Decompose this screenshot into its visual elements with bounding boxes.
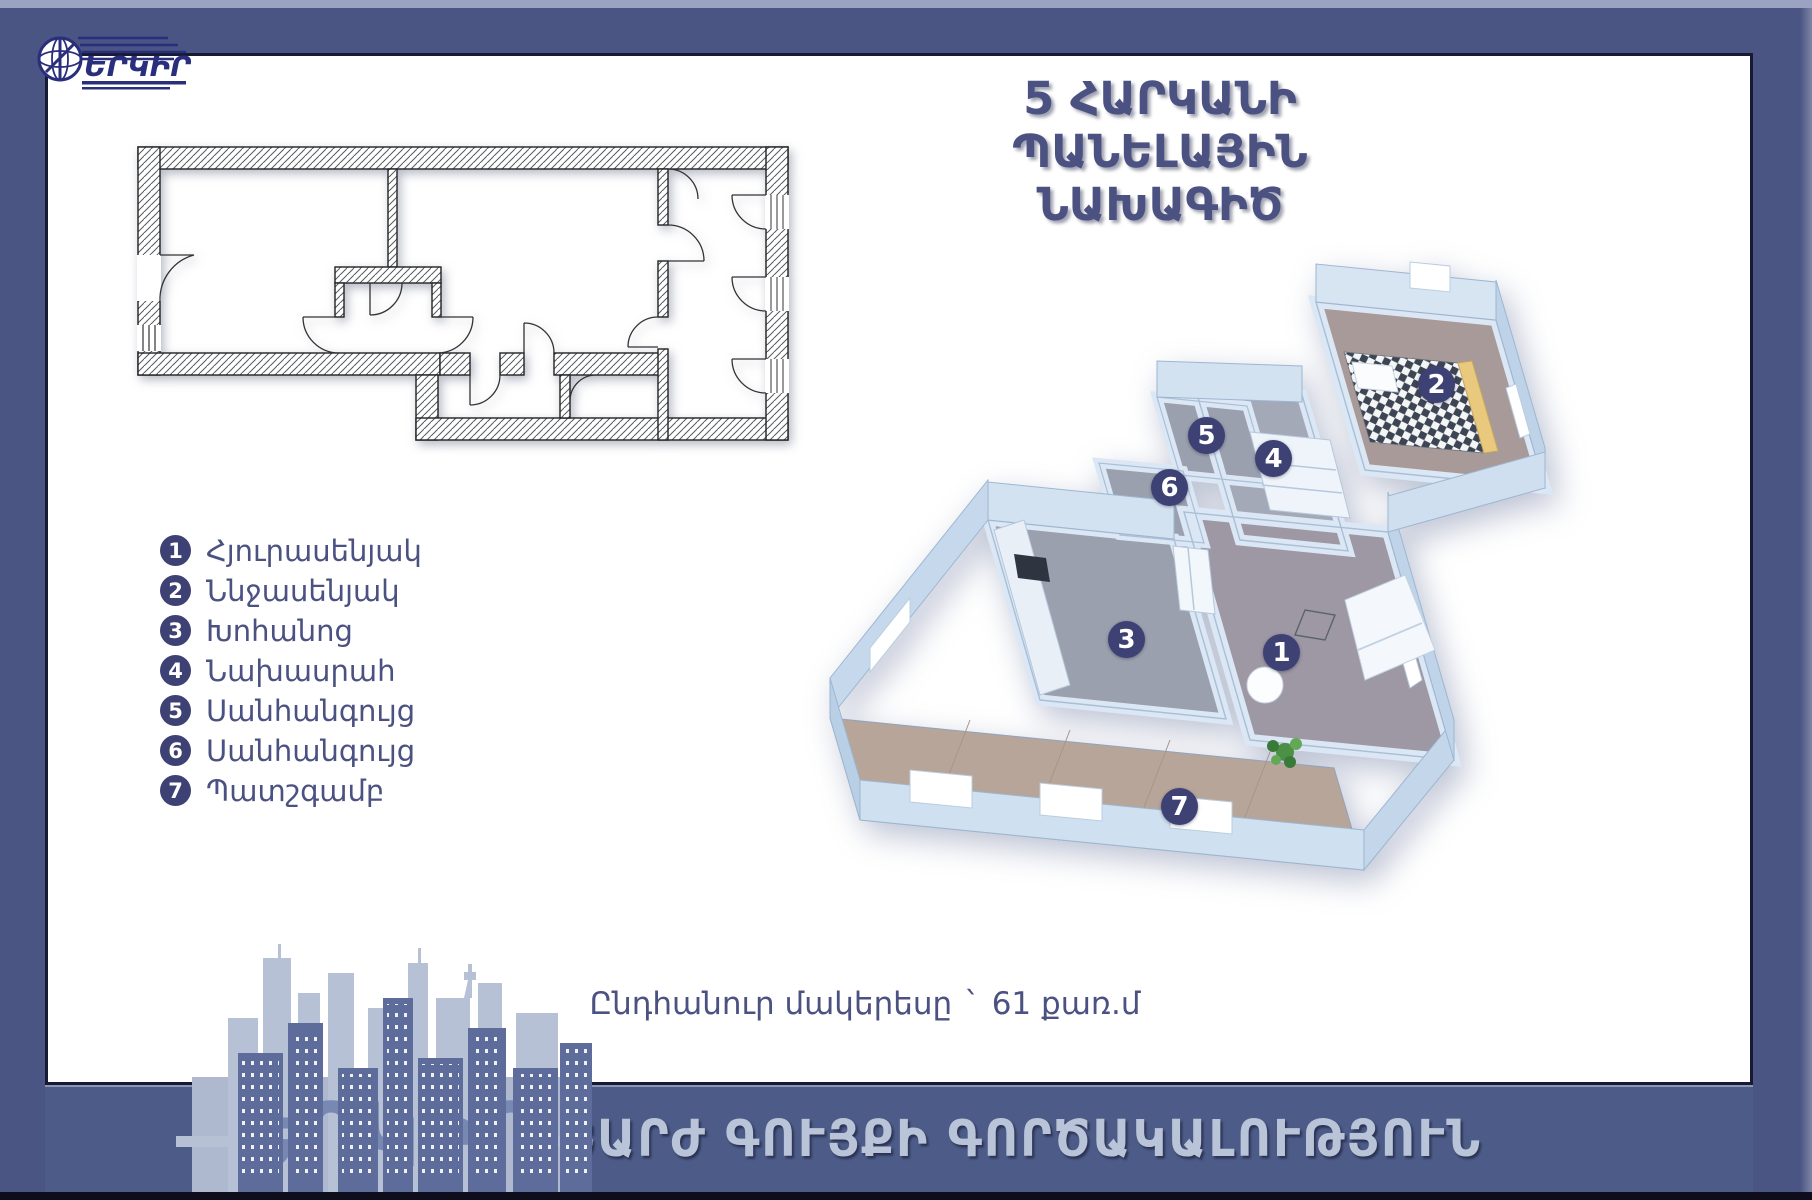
legend-label-5: Սանհանգույց <box>206 694 415 728</box>
room-legend: 1 Հյուրասենյակ 2 Ննջասենյակ 3 Խոհանոց 4 … <box>160 535 422 815</box>
room-marker-6: 6 <box>1151 469 1188 506</box>
room-marker-2: 2 <box>1418 366 1455 403</box>
skyline-logo: ԵՐԿԻՐ <box>168 938 592 1192</box>
brand-logo: ԵՐԿԻՐ <box>18 14 238 94</box>
legend-number-4: 4 <box>160 655 191 686</box>
room-marker-1: 1 <box>1263 634 1300 671</box>
legend-number-2: 2 <box>160 575 191 606</box>
brand-underline <box>82 81 186 85</box>
floor-plan-2d <box>130 135 790 450</box>
area-separator: ` <box>964 986 980 1022</box>
room-marker-4: 4 <box>1255 440 1292 477</box>
total-area: Ընդհանուր մակերեսը`61 քառ.մ <box>545 986 1185 1022</box>
floor-plan-3d <box>710 180 1650 880</box>
legend-number-1: 1 <box>160 535 191 566</box>
area-label: Ընդհանուր մակերեսը <box>589 986 952 1022</box>
frame-top-strip <box>0 0 1812 8</box>
walls <box>138 147 788 440</box>
title-line-1: 5 ՀԱՐԿԱՆԻ ՊԱՆԵԼԱՅԻՆ <box>880 72 1440 178</box>
legend-label-3: Խոհանոց <box>206 614 353 648</box>
area-value: 61 քառ.մ <box>992 986 1141 1022</box>
legend-number-7: 7 <box>160 775 191 806</box>
legend-label-4: Նախասրահ <box>206 654 395 688</box>
frame-bottom-strip <box>0 1192 1812 1200</box>
brand-name: ԵՐԿԻՐ <box>84 50 191 83</box>
legend-label-2: Ննջասենյակ <box>206 574 400 608</box>
stove <box>1014 554 1050 582</box>
legend-number-3: 3 <box>160 615 191 646</box>
legend-item-1: 1 Հյուրասենյակ <box>160 535 422 566</box>
legend-number-6: 6 <box>160 735 191 766</box>
room-marker-3: 3 <box>1108 621 1145 658</box>
legend-item-2: 2 Ննջասենյակ <box>160 575 422 606</box>
legend-item-7: 7 Պատշգամբ <box>160 775 422 806</box>
legend-number-5: 5 <box>160 695 191 726</box>
legend-label-6: Սանհանգույց <box>206 734 415 768</box>
room-marker-7: 7 <box>1161 788 1198 825</box>
legend-item-6: 6 Սանհանգույց <box>160 735 422 766</box>
poster: ԵՐԿԻՐ 5 ՀԱՐԿԱՆԻ ՊԱՆԵԼԱՅԻՆ ՆԱԽԱԳԻԾ <box>0 0 1812 1200</box>
legend-label-1: Հյուրասենյակ <box>206 534 422 568</box>
legend-item-5: 5 Սանհանգույց <box>160 695 422 726</box>
wall-back-middle <box>1157 361 1302 402</box>
globe-icon <box>39 38 81 80</box>
legend-item-3: 3 Խոհանոց <box>160 615 422 646</box>
legend-item-4: 4 Նախասրահ <box>160 655 422 686</box>
pillow <box>1352 362 1398 392</box>
dining-table <box>1247 667 1283 703</box>
legend-label-7: Պատշգամբ <box>206 774 384 808</box>
room-marker-5: 5 <box>1188 417 1225 454</box>
frame-right-highlight <box>1800 8 1812 1192</box>
